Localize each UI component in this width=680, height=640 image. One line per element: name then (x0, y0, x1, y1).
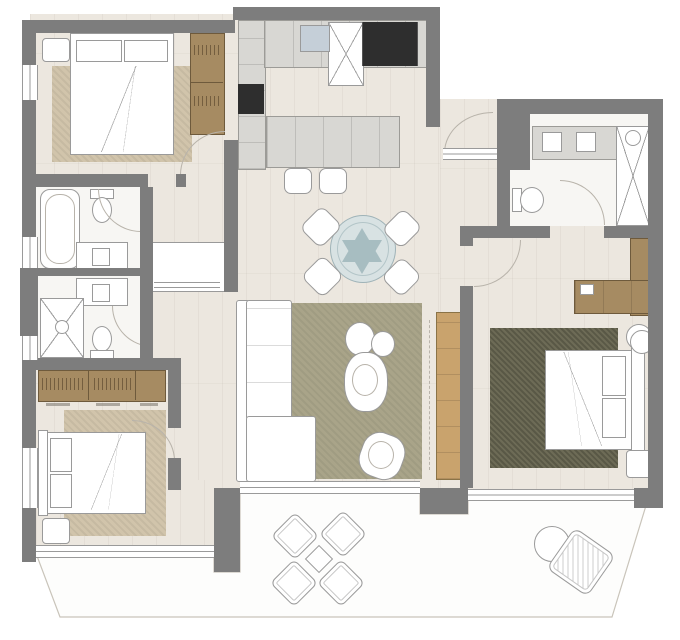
wall-bed2-bath (36, 174, 148, 187)
master-bed-headboard (631, 346, 645, 454)
kitchen-sink (300, 25, 330, 52)
ensuite-sink-1 (542, 132, 562, 152)
wall-bath1-right (140, 187, 153, 268)
window-bedroom3-left (22, 448, 38, 508)
fridge-freezer (362, 22, 418, 66)
vanity2-sink (92, 284, 110, 302)
bed3-headboard (38, 430, 48, 516)
wall-entry-chunk (497, 99, 530, 170)
ensuite-toilet-bowl (520, 187, 544, 213)
wall-left-seg1 (22, 20, 36, 65)
bar-stool-2 (319, 168, 347, 194)
wall-post-doors (176, 174, 186, 187)
sofa-seats (246, 300, 292, 420)
wall-ensuite-bottom-right (604, 226, 657, 238)
bed3-wardrobe-rail-1 (42, 378, 84, 390)
wall-kitchen-right (426, 7, 440, 127)
bathtub-inner (45, 194, 75, 264)
wall-column-living-sw (214, 488, 240, 572)
wall-hall-kitchen (224, 140, 238, 238)
master-bed-duvet (546, 352, 616, 446)
wall-bed3-right-lower (168, 458, 181, 490)
wall-left-seg3 (20, 268, 38, 336)
dimension-label-1 (46, 403, 70, 406)
hall-niche-door (154, 282, 220, 288)
wall-top-right (528, 99, 663, 114)
bed3-nightstand (42, 518, 70, 544)
toilet2-bowl (92, 326, 112, 352)
wall-left-seg4 (22, 360, 36, 448)
bed3-pillow-1 (50, 438, 72, 472)
bed2-duvet (71, 66, 171, 152)
vanity1-sink (92, 248, 110, 266)
bed3-pillow-2 (50, 474, 72, 508)
wall-left-seg2 (22, 100, 36, 237)
wall-bath2-right (140, 276, 153, 358)
bed3-wardrobe-rail-2 (94, 378, 132, 390)
dimension-label-2 (96, 403, 120, 406)
coffee-table-small-1 (345, 322, 375, 356)
wall-stub-master-living (420, 488, 468, 514)
bar-stool-1 (284, 168, 312, 194)
wall-top-left (22, 20, 235, 33)
window-bedroom2-left (22, 65, 38, 100)
kitchen-island (266, 116, 400, 168)
wall-below-bath2 (22, 358, 181, 370)
master-desk-item (580, 284, 594, 295)
window-bedroom3-terrace (36, 545, 214, 558)
coffee-table-oval-inner (352, 364, 378, 396)
kitchen-tall-unit (328, 22, 364, 86)
sofa-chaise (246, 416, 316, 482)
window-living-terrace (240, 481, 420, 494)
bed2-wardrobe-rail-bottom (194, 96, 219, 106)
bed2-nightstand (42, 38, 70, 62)
window-master-terrace (468, 489, 634, 501)
bed3-wardrobe-divider-2 (135, 370, 136, 400)
wall-master-left (460, 286, 473, 488)
bed2-wardrobe-divider (190, 82, 223, 83)
wall-right-bottom-chunk (634, 488, 663, 508)
wall-top-kitchen (233, 7, 440, 20)
bed3-wardrobe-divider-1 (88, 370, 89, 400)
entry-door-threshold (443, 148, 497, 160)
wall-right (648, 99, 663, 499)
ensuite-sink-2 (576, 132, 596, 152)
window-bath2-left (22, 336, 38, 360)
wall-niche-right (224, 238, 238, 292)
wall-left-seg5 (22, 508, 36, 562)
dimension-label-3 (140, 403, 158, 406)
shower2-head (55, 320, 69, 334)
tv-sideboard (436, 312, 462, 480)
bed2-pillow-left (76, 40, 122, 62)
wall-ensuite-bottom-left (460, 226, 550, 238)
oven-column (238, 84, 264, 114)
window-bath1-left (22, 237, 38, 268)
ensuite-shower-head (625, 130, 641, 146)
floor-plan (0, 0, 680, 640)
wall-between-baths (36, 268, 153, 276)
wall-bed3-right-upper (168, 370, 181, 428)
wall-ensuite-left (497, 170, 510, 226)
bed2-wardrobe-rail-top (194, 45, 219, 55)
bed2-pillow-right (124, 40, 168, 62)
wall-master-left-stub (460, 238, 473, 246)
tv-sideboard-door-swing (429, 320, 431, 470)
armchair-seat (368, 441, 394, 469)
